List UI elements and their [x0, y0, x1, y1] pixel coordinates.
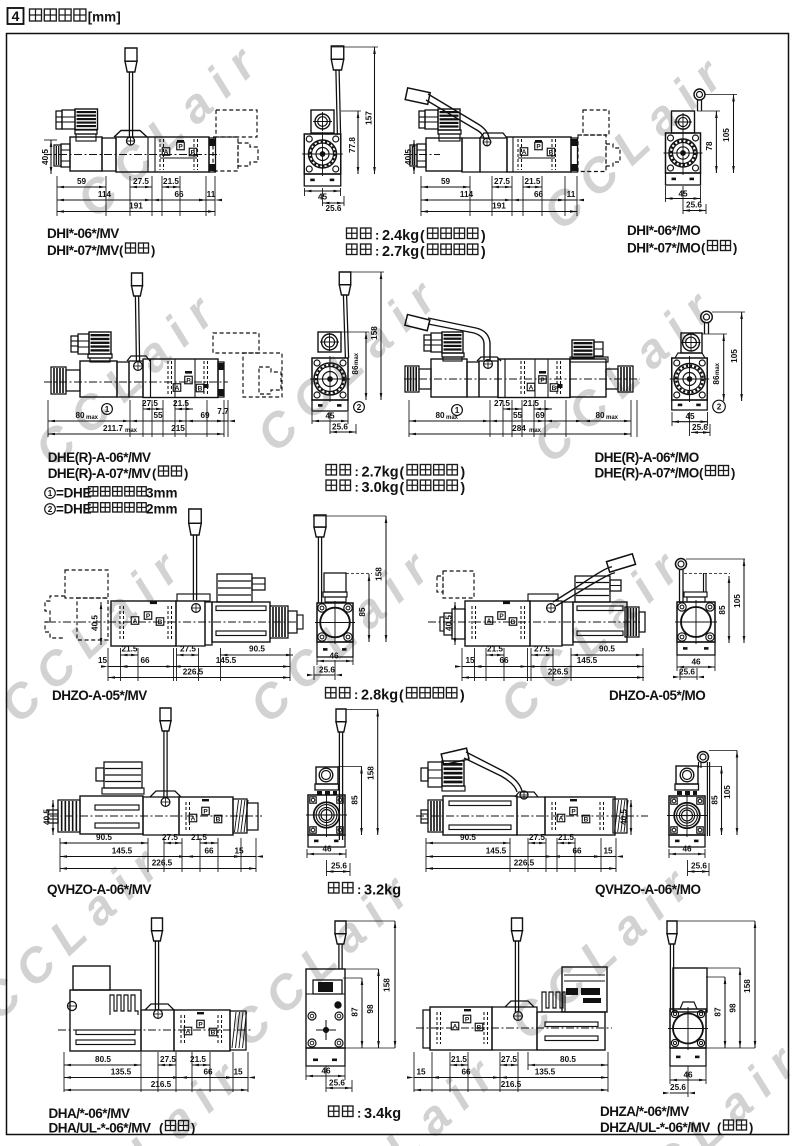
- svg-text:(: (: [159, 1121, 164, 1136]
- svg-text:15: 15: [233, 1068, 243, 1077]
- svg-text:85: 85: [711, 795, 720, 805]
- svg-text:40.5: 40.5: [91, 615, 100, 631]
- svg-text:21.5: 21.5: [487, 645, 503, 654]
- svg-text:(: (: [699, 466, 704, 481]
- svg-text:98: 98: [729, 1003, 738, 1013]
- svg-text:A: A: [186, 1029, 191, 1036]
- svg-text:40.5: 40.5: [445, 615, 454, 631]
- svg-text:B: B: [158, 619, 163, 626]
- svg-text::: :: [375, 244, 379, 259]
- svg-text:21.5: 21.5: [525, 177, 541, 186]
- svg-text:2.4kg: 2.4kg: [382, 228, 419, 244]
- svg-text:145.5: 145.5: [112, 847, 133, 856]
- svg-text:25.6: 25.6: [331, 862, 347, 871]
- svg-text:27.5: 27.5: [180, 645, 196, 654]
- svg-text:25.6: 25.6: [670, 1083, 686, 1092]
- svg-text:85: 85: [358, 607, 367, 617]
- svg-text:A: A: [175, 385, 180, 392]
- svg-text:135.5: 135.5: [111, 1068, 132, 1077]
- svg-text:2.7kg: 2.7kg: [382, 244, 419, 260]
- svg-text:21.5: 21.5: [558, 833, 574, 842]
- svg-text:max: max: [86, 415, 99, 421]
- svg-text:21.5: 21.5: [173, 399, 189, 408]
- svg-text:46: 46: [682, 845, 692, 854]
- svg-text:B: B: [511, 619, 516, 626]
- svg-text:25.6: 25.6: [679, 668, 695, 677]
- svg-text:105: 105: [722, 128, 731, 142]
- svg-text:135.5: 135.5: [535, 1068, 556, 1077]
- svg-text:80.5: 80.5: [560, 1055, 576, 1064]
- svg-text:27.5: 27.5: [133, 177, 149, 186]
- svg-text:DHI*-07*/MO: DHI*-07*/MO: [627, 241, 700, 256]
- svg-text:15: 15: [416, 1068, 426, 1077]
- svg-text:(: (: [420, 227, 425, 243]
- svg-text:): ): [731, 466, 735, 481]
- svg-text:): ): [460, 687, 465, 703]
- svg-text:25.6: 25.6: [329, 1079, 345, 1088]
- svg-text:(: (: [399, 687, 404, 703]
- svg-text:): ): [191, 1121, 195, 1136]
- svg-text:3.2kg: 3.2kg: [364, 883, 401, 899]
- svg-text:P: P: [186, 378, 191, 385]
- svg-text:B: B: [549, 150, 554, 157]
- svg-text:B: B: [477, 1025, 482, 1032]
- svg-text:A: A: [559, 816, 564, 823]
- svg-text:): ): [481, 227, 486, 243]
- svg-text:(: (: [400, 464, 405, 480]
- svg-text:25.6: 25.6: [691, 862, 707, 871]
- svg-text:DHE(R)-A-07*/MV: DHE(R)-A-07*/MV: [48, 466, 151, 481]
- svg-text:66: 66: [140, 656, 150, 665]
- svg-text:216.5: 216.5: [501, 1080, 522, 1089]
- svg-text:40.5: 40.5: [404, 149, 413, 165]
- svg-text:90.5: 90.5: [249, 645, 265, 654]
- svg-text:191: 191: [492, 202, 506, 211]
- svg-text:2: 2: [48, 505, 53, 514]
- svg-text:P: P: [571, 809, 576, 816]
- svg-text:3mm: 3mm: [146, 486, 178, 501]
- svg-text:(: (: [400, 479, 405, 495]
- svg-text:158: 158: [743, 979, 752, 993]
- svg-text:85: 85: [718, 605, 727, 615]
- svg-text:226.5: 226.5: [152, 859, 173, 868]
- svg-text:15: 15: [465, 656, 475, 665]
- svg-text:80: 80: [435, 411, 445, 420]
- svg-text:P: P: [146, 613, 151, 620]
- svg-text:): ): [151, 243, 155, 258]
- svg-text:59: 59: [441, 177, 451, 186]
- svg-text::: :: [357, 1106, 361, 1121]
- svg-text:46: 46: [322, 845, 332, 854]
- svg-text:P: P: [465, 1017, 470, 1024]
- svg-text:B: B: [552, 385, 557, 392]
- svg-text:69: 69: [535, 411, 545, 420]
- svg-text:B: B: [211, 1030, 216, 1037]
- svg-text:B: B: [216, 817, 221, 824]
- svg-text:157: 157: [365, 111, 374, 125]
- svg-text:QVHZO-A-06*/MO: QVHZO-A-06*/MO: [595, 882, 701, 897]
- svg-text:2: 2: [717, 402, 722, 411]
- svg-text:284: 284: [512, 424, 526, 433]
- svg-text:46: 46: [329, 652, 339, 661]
- svg-text:=DHE: =DHE: [56, 502, 91, 517]
- svg-text:DHI*-06*/MV: DHI*-06*/MV: [47, 226, 119, 241]
- svg-text:69: 69: [200, 411, 210, 420]
- svg-text:P: P: [499, 613, 504, 620]
- svg-text:4: 4: [12, 8, 20, 24]
- svg-text:P: P: [203, 809, 208, 816]
- svg-text:A: A: [453, 1024, 458, 1031]
- svg-text:11: 11: [207, 190, 216, 199]
- svg-text:27.5: 27.5: [160, 1055, 176, 1064]
- svg-text:98: 98: [366, 1004, 375, 1014]
- svg-text:DHA/*-06*/MV: DHA/*-06*/MV: [49, 1106, 131, 1121]
- svg-text:3.0kg: 3.0kg: [362, 480, 399, 496]
- svg-text:55: 55: [513, 411, 523, 420]
- svg-text:1: 1: [48, 489, 53, 498]
- svg-text:A: A: [191, 816, 196, 823]
- svg-text:DHE(R)-A-06*/MV: DHE(R)-A-06*/MV: [48, 450, 151, 465]
- svg-text:27.5: 27.5: [494, 399, 510, 408]
- svg-text:66: 66: [534, 190, 544, 199]
- svg-text:27.5: 27.5: [162, 833, 178, 842]
- svg-text:55: 55: [153, 411, 163, 420]
- svg-text:66: 66: [203, 1068, 213, 1077]
- svg-text:7.7: 7.7: [217, 407, 229, 416]
- svg-text:(: (: [420, 243, 425, 259]
- svg-text:80.5: 80.5: [95, 1055, 111, 1064]
- svg-text:25.6: 25.6: [332, 423, 348, 432]
- svg-text:158: 158: [375, 567, 384, 581]
- svg-text:158: 158: [367, 766, 376, 780]
- svg-text:114: 114: [98, 190, 112, 199]
- svg-text:105: 105: [730, 349, 739, 363]
- svg-text:90.5: 90.5: [460, 833, 476, 842]
- svg-text:216.5: 216.5: [151, 1080, 172, 1089]
- svg-text:21.5: 21.5: [163, 177, 179, 186]
- svg-text::: :: [355, 480, 359, 495]
- svg-text:66: 66: [461, 1068, 471, 1077]
- svg-text:80: 80: [75, 411, 85, 420]
- svg-text:max: max: [529, 428, 542, 434]
- svg-text:21.5: 21.5: [451, 1055, 467, 1064]
- svg-text:): ): [184, 466, 188, 481]
- svg-text:P: P: [198, 1022, 203, 1029]
- svg-text:226.5: 226.5: [514, 859, 535, 868]
- svg-text:B: B: [191, 150, 196, 157]
- svg-text::: :: [357, 882, 361, 897]
- svg-text:27.5: 27.5: [534, 645, 550, 654]
- svg-text:90.5: 90.5: [96, 833, 112, 842]
- svg-text:25.6: 25.6: [319, 666, 335, 675]
- svg-text:A: A: [164, 149, 169, 156]
- svg-text:P: P: [178, 144, 183, 151]
- svg-text:105: 105: [733, 594, 742, 608]
- svg-text:27.5: 27.5: [501, 1055, 517, 1064]
- svg-text:105: 105: [723, 785, 732, 799]
- svg-text:21.5: 21.5: [191, 833, 207, 842]
- svg-text:3.4kg: 3.4kg: [364, 1106, 401, 1122]
- svg-text:27.5: 27.5: [529, 833, 545, 842]
- svg-text:2mm: 2mm: [146, 502, 178, 517]
- svg-text:21.5: 21.5: [190, 1055, 206, 1064]
- svg-text:158: 158: [383, 978, 392, 992]
- svg-text:40.5: 40.5: [620, 809, 629, 825]
- svg-text:66: 66: [204, 847, 214, 856]
- svg-text:B: B: [584, 817, 589, 824]
- svg-text:=DHE: =DHE: [56, 486, 91, 501]
- svg-text:145.5: 145.5: [486, 847, 507, 856]
- svg-text:(: (: [119, 243, 124, 258]
- svg-text:21.5: 21.5: [122, 645, 138, 654]
- svg-text:A: A: [133, 618, 138, 625]
- svg-text:15: 15: [234, 847, 244, 856]
- svg-text:P: P: [540, 377, 545, 384]
- svg-text::: :: [355, 464, 359, 479]
- svg-text:226.5: 226.5: [548, 668, 569, 677]
- svg-text:QVHZO-A-06*/MV: QVHZO-A-06*/MV: [47, 882, 152, 897]
- svg-text:145.5: 145.5: [577, 656, 598, 665]
- svg-text:1: 1: [455, 406, 460, 415]
- svg-text::: :: [375, 228, 379, 243]
- svg-text:11: 11: [567, 190, 576, 199]
- svg-text:[mm]: [mm]: [88, 10, 121, 25]
- svg-text:2.8kg: 2.8kg: [361, 688, 398, 704]
- svg-text:66: 66: [174, 190, 184, 199]
- svg-text:DHZO-A-05*/MV: DHZO-A-05*/MV: [52, 688, 147, 703]
- svg-text:max: max: [125, 428, 138, 434]
- svg-text:2.7kg: 2.7kg: [362, 465, 399, 481]
- svg-text:max: max: [446, 415, 459, 421]
- svg-text:DHE(R)-A-07*/MO: DHE(R)-A-07*/MO: [595, 466, 699, 481]
- svg-text:66: 66: [499, 656, 509, 665]
- svg-text:59: 59: [77, 177, 87, 186]
- svg-text:87: 87: [714, 1007, 723, 1017]
- svg-text:DHA/UL-*-06*/MV: DHA/UL-*-06*/MV: [49, 1121, 152, 1136]
- svg-text:): ): [461, 464, 466, 480]
- svg-text:(: (: [717, 1120, 722, 1135]
- svg-text::: :: [354, 687, 358, 702]
- svg-text:DHI*-06*/MO: DHI*-06*/MO: [627, 223, 700, 238]
- svg-text:158: 158: [370, 326, 379, 340]
- svg-text:DHZO-A-05*/MO: DHZO-A-05*/MO: [609, 688, 705, 703]
- svg-text:max: max: [354, 352, 360, 365]
- svg-text:2: 2: [357, 403, 362, 412]
- svg-text:): ): [749, 1120, 753, 1135]
- svg-text:215: 215: [171, 424, 185, 433]
- svg-text:27.5: 27.5: [494, 177, 510, 186]
- svg-text:191: 191: [129, 202, 143, 211]
- svg-text:86: 86: [712, 375, 721, 385]
- svg-text:86: 86: [351, 365, 360, 375]
- svg-text:45: 45: [685, 412, 695, 421]
- svg-text:40.5: 40.5: [41, 149, 50, 165]
- svg-text:): ): [461, 479, 466, 495]
- svg-text:DHI*-07*/MV: DHI*-07*/MV: [47, 243, 119, 258]
- svg-text:66: 66: [572, 847, 582, 856]
- svg-text:(: (: [152, 466, 157, 481]
- svg-text:40.5: 40.5: [43, 809, 52, 825]
- svg-text:78: 78: [705, 141, 714, 151]
- svg-text:21.5: 21.5: [523, 399, 539, 408]
- svg-text:A: A: [529, 385, 534, 392]
- svg-text:max: max: [715, 362, 721, 375]
- svg-text:(: (: [701, 241, 706, 256]
- svg-text:85: 85: [351, 795, 360, 805]
- svg-text:226.5: 226.5: [183, 668, 204, 677]
- svg-text:114: 114: [460, 190, 474, 199]
- svg-text:): ): [733, 241, 737, 256]
- svg-text:P: P: [536, 144, 541, 151]
- svg-text:211.7: 211.7: [103, 424, 123, 433]
- svg-text:B: B: [198, 386, 203, 393]
- svg-text:DHZA/*-06*/MV: DHZA/*-06*/MV: [600, 1104, 689, 1119]
- svg-text:15: 15: [603, 847, 613, 856]
- svg-text:145.5: 145.5: [216, 656, 237, 665]
- svg-text:80: 80: [595, 411, 605, 420]
- svg-text:90.5: 90.5: [599, 645, 615, 654]
- svg-text:1: 1: [105, 405, 110, 414]
- svg-text:): ): [481, 243, 486, 259]
- svg-text:46: 46: [691, 658, 701, 667]
- svg-text:27.5: 27.5: [142, 399, 158, 408]
- svg-text:15: 15: [98, 656, 108, 665]
- svg-text:max: max: [606, 415, 619, 421]
- svg-text:25.6: 25.6: [326, 204, 342, 213]
- svg-text:DHE(R)-A-06*/MO: DHE(R)-A-06*/MO: [595, 450, 699, 465]
- svg-text:77.8: 77.8: [348, 137, 357, 153]
- svg-text:25.6: 25.6: [692, 423, 708, 432]
- svg-text:A: A: [522, 149, 527, 156]
- svg-text:87: 87: [351, 1007, 360, 1017]
- svg-text:25.6: 25.6: [686, 201, 702, 210]
- svg-text:A: A: [487, 618, 492, 625]
- svg-text:DHZA/UL-*-06*/MV: DHZA/UL-*-06*/MV: [600, 1120, 710, 1135]
